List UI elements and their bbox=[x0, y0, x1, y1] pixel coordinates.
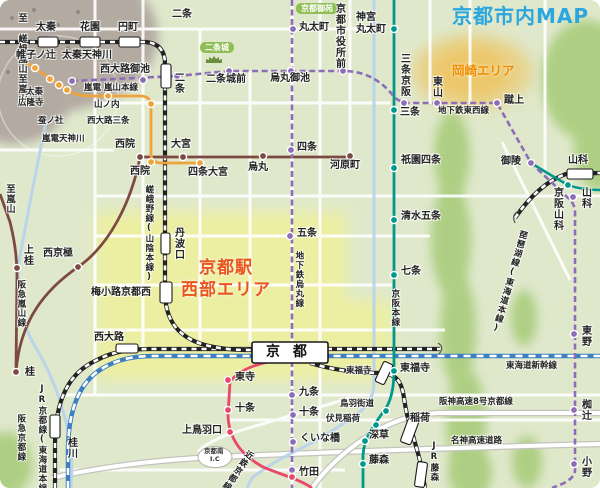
line-tokaido-shinkansen: 東海道新幹線 bbox=[506, 362, 557, 371]
st-kujo: 九条 bbox=[299, 388, 319, 399]
ic-kyoto-minami-1: 京都南 bbox=[204, 448, 224, 455]
st-katabiranotsuji: 帷子ノ辻 bbox=[16, 51, 56, 62]
st-enmachi: 円町 bbox=[118, 23, 138, 34]
hwy-meishin: 名神高速道路 bbox=[451, 437, 502, 446]
st-jingu-marutamachi-2: 丸太町 bbox=[356, 25, 386, 36]
st-kuinabashi: くいな橋 bbox=[300, 434, 340, 445]
st-tobakaido: 鳥羽街道 bbox=[340, 400, 374, 409]
st-uzumasa-tenjingawa: 太秦天神川 bbox=[62, 51, 112, 62]
st-keihan-yamashina: 京阪山科 bbox=[551, 187, 562, 231]
st-jingu-marutamachi-1: 神宮 bbox=[356, 13, 376, 24]
st-tambaguchi: 丹波口 bbox=[172, 227, 183, 260]
st-jr-fujinomori: JR藤森 bbox=[429, 441, 438, 482]
dir-saga-arashiyama: 至 嵯峨嵐山 bbox=[16, 13, 25, 74]
area-kyoto-west-2: 西部エリア bbox=[181, 282, 271, 300]
st-sanjo: 三条 bbox=[400, 108, 420, 119]
st-nishioji-oike: 西大路御池 bbox=[100, 65, 150, 76]
st-randen-tenjingawa: 嵐電天神川 bbox=[42, 135, 85, 144]
st-inari: 稲荷 bbox=[410, 414, 430, 425]
pill-nijo-castle: 二条城 bbox=[200, 42, 234, 53]
st-kiyomizu-gojo: 清水五条 bbox=[401, 212, 441, 223]
st-misasagi: 御陵 bbox=[501, 157, 521, 168]
hwy-hanshin-8-kyoto: 阪神高速8号京都線 bbox=[439, 398, 513, 407]
st-katsuragawa: 桂川 bbox=[65, 437, 76, 459]
st-jujo-subway: 十条 bbox=[299, 408, 319, 419]
st-takeda: 竹田 bbox=[299, 468, 319, 479]
st-kamitobaguchi: 上鳥羽口 bbox=[182, 426, 222, 437]
st-uzumasa: 太秦 bbox=[36, 23, 56, 34]
st-toji: 東寺 bbox=[235, 373, 255, 384]
line-hankyu-arashiyama: 阪急嵐山線 bbox=[16, 280, 25, 328]
st-nijo-subway: 二条 bbox=[172, 72, 183, 94]
st-fujinomori: 藤森 bbox=[369, 456, 389, 467]
line-jr-kyoto: JR京都線(東海道本線) bbox=[37, 384, 46, 488]
map-labels: 京都市内MAP岡崎エリア京都駅西部エリア京都御苑二条城至 嵯峨嵐山至嵐山至嵐山太… bbox=[0, 0, 600, 488]
st-saiin-hankyu: 西院 bbox=[115, 140, 135, 151]
st-saiin-randen: 西院 bbox=[130, 167, 150, 178]
st-sanjo-keihan-subway: 三条京阪 bbox=[398, 53, 409, 97]
map-title: 京都市内MAP bbox=[452, 6, 589, 27]
line-kintetsu-kyoto: 近鉄京都線 bbox=[220, 448, 255, 488]
st-shichijo: 七条 bbox=[401, 267, 421, 278]
st-nagitsuji: 椥辻 bbox=[579, 399, 590, 421]
st-shiyakusho-mae: 京都市役所前 bbox=[333, 3, 344, 69]
dir-arashiyama-hankyu: 至嵐山 bbox=[4, 184, 13, 214]
st-shijo-subway: 四条 bbox=[297, 143, 317, 154]
kyoto-city-map: 京都市内MAP岡崎エリア京都駅西部エリア京都御苑二条城至 嵯峨嵐山至嵐山至嵐山太… bbox=[0, 0, 600, 488]
area-okazaki: 岡崎エリア bbox=[452, 64, 515, 77]
st-kyoto: 京 都 bbox=[266, 345, 311, 360]
st-gojo-subway: 五条 bbox=[297, 229, 317, 240]
line-sagano: 嵯峨野線(山陰本線) bbox=[144, 185, 153, 283]
line-randen-arashiyama: 嵐電 嵐山本線 bbox=[84, 84, 138, 93]
st-gion-shijo: 祇園四条 bbox=[401, 156, 441, 167]
line-hankyu-kyoto: 阪急京都線 bbox=[16, 414, 25, 462]
st-uzumasa-koryuji-1: 太秦 bbox=[26, 88, 43, 97]
st-omiya: 大宮 bbox=[171, 140, 191, 151]
st-ono: 小野 bbox=[579, 456, 590, 478]
st-karasuma-oike: 烏丸御池 bbox=[270, 74, 310, 85]
st-shijo-omiya: 四条大宮 bbox=[188, 168, 228, 179]
st-tofukuji-jr: 東福寺 bbox=[346, 367, 372, 376]
st-higashiyama: 東山 bbox=[430, 76, 441, 98]
st-fukakusa: 深草 bbox=[369, 431, 389, 442]
st-marutamachi: 丸太町 bbox=[299, 23, 329, 34]
st-yamanouchi: 山ノ内 bbox=[94, 101, 120, 110]
st-katsura: 桂 bbox=[25, 368, 35, 379]
line-keihan-main: 京阪本線 bbox=[390, 289, 399, 327]
st-kaikonoyashiro: 蚕ノ社 bbox=[38, 117, 64, 126]
line-subway-karasuma: 地下鉄烏丸線 bbox=[294, 251, 303, 308]
st-nijo-jr: 二条 bbox=[172, 10, 192, 21]
st-uzumasa-koryuji-2: 広隆寺 bbox=[18, 99, 44, 108]
area-kyoto-west-1: 京都駅 bbox=[199, 260, 253, 278]
st-nishioji-sanjo: 西大路三条 bbox=[87, 117, 130, 126]
st-nishioji: 西大路 bbox=[94, 333, 124, 344]
st-nijojo-mae: 二条城前 bbox=[206, 75, 246, 86]
st-karasuma-hankyu: 烏丸 bbox=[248, 163, 268, 174]
st-hanazono: 花園 bbox=[80, 23, 100, 34]
st-keage: 蹴上 bbox=[504, 96, 524, 107]
ic-kyoto-minami-2: I.C bbox=[210, 456, 220, 463]
pill-kyoto-gyoen: 京都御苑 bbox=[296, 3, 338, 14]
st-umekoji-kyotonishi: 梅小路京都西 bbox=[91, 288, 151, 299]
line-subway-tozai: 地下鉄東西線 bbox=[438, 107, 489, 116]
st-fushimi-inari: 伏見稲荷 bbox=[326, 415, 360, 424]
st-yamashina-subway: 山科 bbox=[579, 187, 590, 209]
st-jujo-kintetsu: 十条 bbox=[235, 404, 255, 415]
st-nishi-kyogoku: 西京極 bbox=[43, 249, 73, 260]
st-yamashina-jr: 山科 bbox=[568, 156, 588, 167]
st-kamikatsura: 上桂 bbox=[21, 244, 32, 266]
st-kawaramachi: 河原町 bbox=[330, 161, 360, 172]
st-higashino: 東野 bbox=[579, 325, 590, 347]
line-biwako: 琵琶湖線(東海道本線) bbox=[489, 229, 527, 335]
st-tofukuji-keihan: 東福寺 bbox=[400, 364, 430, 375]
